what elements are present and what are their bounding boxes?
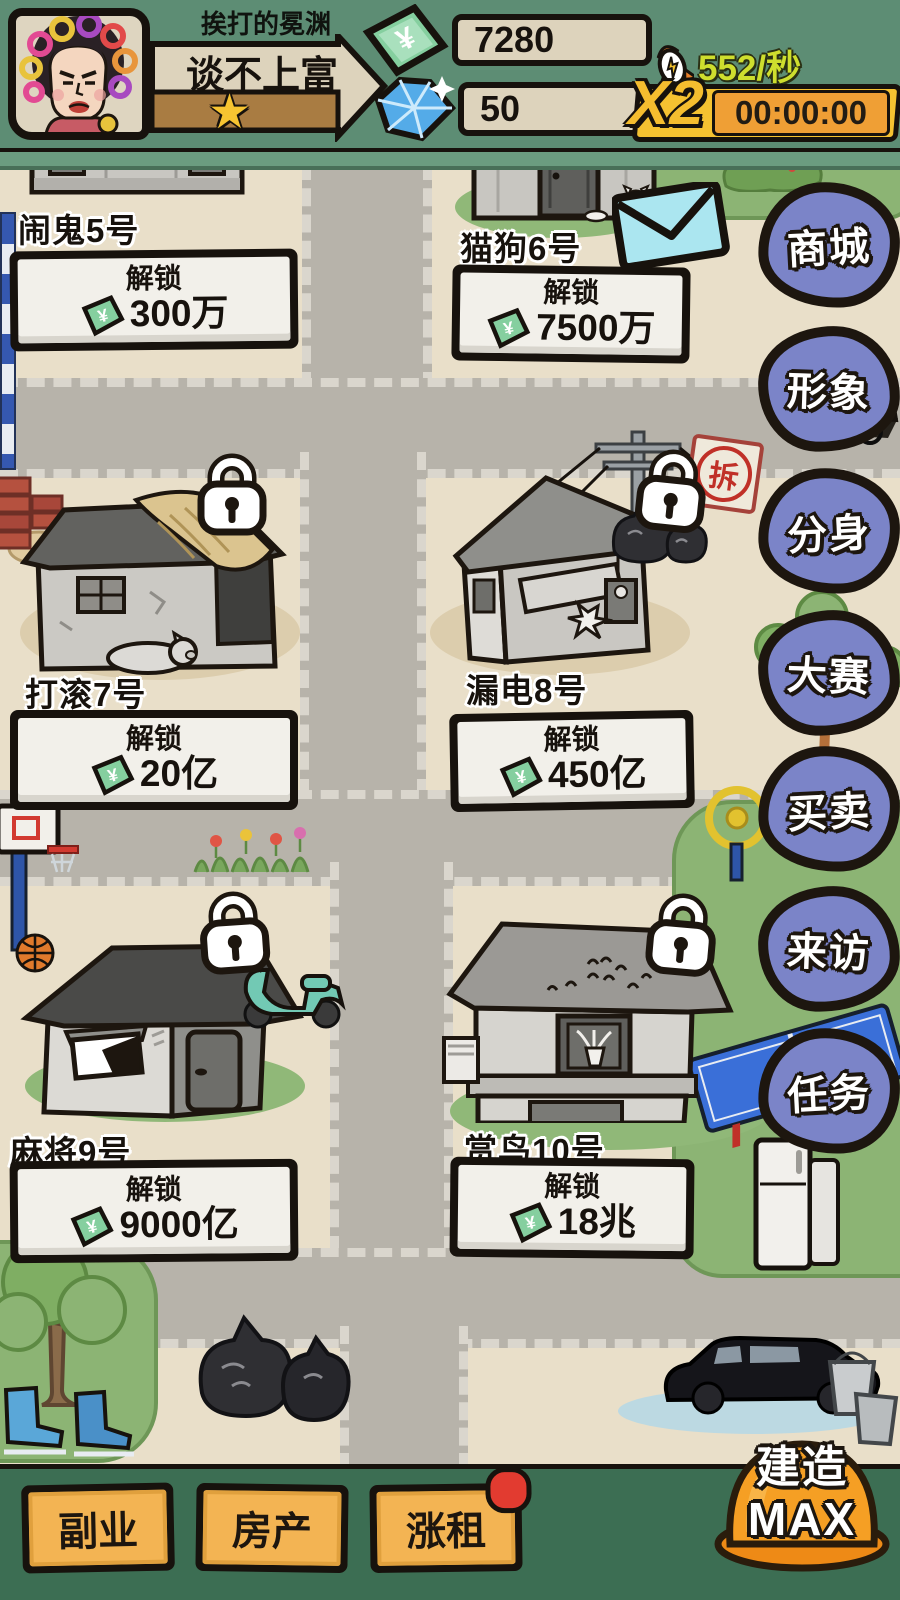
top-hud-edge [0,148,900,170]
money-icon: ¥ [69,1205,115,1247]
game-screen: 拆 [0,0,900,1600]
unlock-button-10[interactable]: 解锁 ¥ 18兆 [449,1157,694,1260]
avatar[interactable] [8,8,150,140]
raise-rent-button[interactable]: 涨租 [369,1483,522,1573]
mail-icon[interactable] [612,182,730,270]
property-label: 闹鬼5号 [18,204,139,252]
lock-icon [196,446,268,538]
money-icon: ¥ [508,1201,554,1243]
boost-button[interactable]: X2 00:00:00 [634,84,900,142]
road-vertical-mid [300,452,426,797]
sidebar-label: 买卖 [786,778,873,840]
money-bar: 7280 [452,14,652,66]
property-label: 打滚7号 [25,668,146,716]
build-max-button[interactable]: 建造 MAX [712,1420,892,1578]
money-icon: ¥ [486,307,533,350]
diamond-icon [364,72,462,144]
build-label-line1: 建造 [712,1446,892,1490]
real-estate-button[interactable]: 房产 [195,1483,348,1573]
unlock-label: 解锁 [126,1175,182,1205]
flower-bed [190,814,322,876]
appliances [752,1136,840,1274]
sidebar-label: 分身 [786,500,873,562]
road-vertical-low [330,862,453,1254]
avatar-portrait [16,16,142,134]
star-icon: ★ [208,84,251,140]
sidebar-label: 商城 [786,214,873,276]
money-icon: ¥ [358,4,454,78]
boost-timer-value: 00:00:00 [735,94,867,132]
ice-skates [0,1382,144,1472]
sidebar-item-clone[interactable]: 分身 [755,464,900,597]
sidebar-label: 任务 [786,1060,873,1122]
notification-badge [485,1467,532,1514]
side-business-label: 副业 [28,1490,168,1567]
unlock-label: 解锁 [126,264,182,294]
lock-icon [631,438,712,537]
unlock-button-9[interactable]: 解锁 ¥ 9000亿 [10,1159,299,1264]
unlock-label: 解锁 [543,725,600,755]
side-business-button[interactable]: 副业 [21,1482,175,1573]
unlock-price: 300万 [130,294,229,334]
money-icon: ¥ [498,755,545,798]
road-vertical-top [302,162,432,390]
lock-icon [642,883,722,981]
boost-multiplier: X2 [628,68,704,139]
unlock-button-6[interactable]: 解锁 ¥ 7500万 [451,264,690,363]
sidebar-label: 大赛 [786,643,872,704]
unlock-label: 解锁 [543,278,599,308]
road-vertical-bottom [340,1326,468,1471]
unlock-button-5[interactable]: 解锁 ¥ 300万 [9,248,298,351]
money-icon: ¥ [80,294,126,336]
unlock-price: 20亿 [140,755,218,794]
unlock-button-7[interactable]: 解锁 ¥ 20亿 [10,710,298,810]
build-label-line2: MAX [712,1496,892,1542]
unlock-button-8[interactable]: 解锁 ¥ 450亿 [449,710,695,812]
wealth-title: 谈不上富 [156,44,368,99]
money-value: 7280 [474,19,554,61]
unlock-price: 450亿 [548,755,647,796]
diamond-bar: 50 [458,82,654,136]
property-label: 漏电8号 [466,664,587,712]
sidebar-label: 形象 [786,359,872,420]
boost-timer: 00:00:00 [712,90,890,136]
unlock-price: 18兆 [558,1203,637,1243]
money-icon: ¥ [90,754,136,796]
trash-pile-bottom [192,1298,357,1430]
unlock-price: 7500万 [536,309,656,350]
real-estate-label: 房产 [202,1490,341,1566]
unlock-label: 解锁 [126,724,182,753]
player-name: 挨打的冕渊 [152,4,380,41]
lock-icon [195,882,273,979]
property-label: 猫狗6号 [460,222,581,270]
unlock-label: 解锁 [544,1172,600,1202]
diamond-value: 50 [480,88,520,130]
sidebar-label: 来访 [786,919,872,980]
unlock-price: 9000亿 [119,1206,239,1246]
